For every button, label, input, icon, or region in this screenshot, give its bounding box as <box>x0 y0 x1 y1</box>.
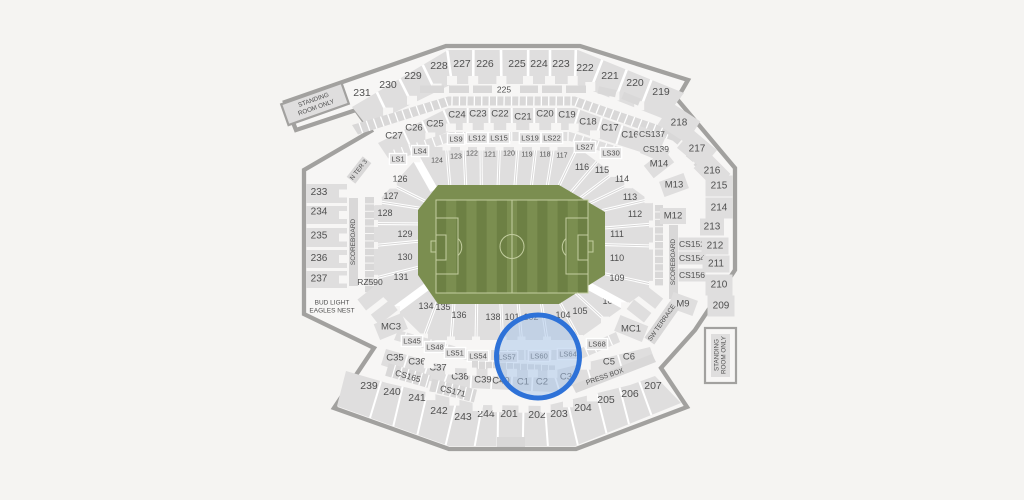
svg-text:123: 123 <box>450 154 462 161</box>
svg-text:C19: C19 <box>558 110 575 121</box>
svg-text:229: 229 <box>404 70 422 82</box>
svg-text:220: 220 <box>626 77 644 89</box>
svg-text:C26: C26 <box>405 123 422 134</box>
svg-text:LS1: LS1 <box>391 155 404 164</box>
svg-text:LS30: LS30 <box>602 149 620 158</box>
svg-text:217: 217 <box>689 144 706 155</box>
svg-text:223: 223 <box>552 58 570 70</box>
svg-text:C35: C35 <box>386 353 403 364</box>
svg-text:SCOREBOARD: SCOREBOARD <box>670 239 677 286</box>
svg-text:124: 124 <box>431 158 443 165</box>
svg-text:LS51: LS51 <box>446 349 464 358</box>
svg-text:CS156: CS156 <box>679 270 705 280</box>
svg-text:C18: C18 <box>579 117 596 128</box>
svg-text:C21: C21 <box>514 112 531 123</box>
svg-text:213: 213 <box>704 222 721 233</box>
svg-text:201: 201 <box>500 408 518 420</box>
svg-text:LS45: LS45 <box>403 337 421 346</box>
svg-text:231: 231 <box>353 87 371 99</box>
svg-text:C23: C23 <box>469 109 486 120</box>
svg-text:C22: C22 <box>491 109 508 120</box>
svg-text:122: 122 <box>466 151 478 158</box>
svg-text:234: 234 <box>311 207 328 218</box>
svg-text:C20: C20 <box>536 109 553 120</box>
svg-text:241: 241 <box>408 392 426 404</box>
svg-text:111: 111 <box>610 229 624 239</box>
svg-text:228: 228 <box>430 60 448 72</box>
svg-text:136: 136 <box>451 310 466 320</box>
svg-text:LS27: LS27 <box>576 143 594 152</box>
svg-text:242: 242 <box>430 405 448 417</box>
svg-text:CS154: CS154 <box>679 253 705 263</box>
svg-text:230: 230 <box>379 79 397 91</box>
svg-text:131: 131 <box>393 272 408 282</box>
svg-text:225: 225 <box>497 85 511 95</box>
svg-text:C16: C16 <box>621 130 638 141</box>
svg-text:MC1: MC1 <box>621 324 641 335</box>
svg-text:120: 120 <box>503 151 515 158</box>
svg-text:210: 210 <box>711 280 728 291</box>
svg-text:130: 130 <box>397 252 412 262</box>
svg-text:LS9: LS9 <box>449 135 462 144</box>
svg-text:110: 110 <box>610 253 624 263</box>
svg-text:BUD LIGHT: BUD LIGHT <box>315 300 350 307</box>
svg-text:219: 219 <box>652 86 670 98</box>
svg-text:225: 225 <box>508 58 526 70</box>
svg-text:M14: M14 <box>650 159 668 170</box>
svg-text:134: 134 <box>418 301 433 311</box>
svg-text:LS19: LS19 <box>521 134 539 143</box>
svg-text:113: 113 <box>623 192 637 202</box>
svg-text:LS4: LS4 <box>413 147 426 156</box>
svg-text:LS15: LS15 <box>490 134 508 143</box>
svg-text:224: 224 <box>530 58 548 70</box>
svg-text:221: 221 <box>601 70 619 82</box>
svg-text:214: 214 <box>711 203 728 214</box>
svg-text:EAGLES NEST: EAGLES NEST <box>309 308 354 315</box>
svg-text:117: 117 <box>556 153 567 160</box>
svg-text:127: 127 <box>383 191 398 201</box>
svg-text:211: 211 <box>708 259 724 270</box>
svg-text:LS22: LS22 <box>543 134 561 143</box>
svg-text:222: 222 <box>576 62 594 74</box>
svg-text:115: 115 <box>595 165 609 175</box>
svg-text:C25: C25 <box>426 119 443 130</box>
svg-text:215: 215 <box>711 181 728 192</box>
svg-text:129: 129 <box>397 229 412 239</box>
svg-text:226: 226 <box>476 58 494 70</box>
svg-text:M12: M12 <box>664 211 682 222</box>
svg-text:C36: C36 <box>408 357 425 368</box>
svg-text:240: 240 <box>383 386 401 398</box>
svg-text:233: 233 <box>311 187 328 198</box>
svg-text:C24: C24 <box>448 110 465 121</box>
svg-text:CS152: CS152 <box>679 239 705 249</box>
svg-text:119: 119 <box>521 152 532 159</box>
svg-text:112: 112 <box>628 209 642 219</box>
svg-text:LS12: LS12 <box>468 134 486 143</box>
svg-text:216: 216 <box>704 166 721 177</box>
svg-text:138: 138 <box>485 312 500 322</box>
svg-text:C17: C17 <box>601 123 618 134</box>
svg-text:206: 206 <box>621 388 639 400</box>
svg-text:203: 203 <box>550 408 568 420</box>
svg-text:218: 218 <box>671 118 688 129</box>
svg-text:121: 121 <box>484 152 496 159</box>
svg-text:ROOM ONLY: ROOM ONLY <box>721 335 728 374</box>
svg-text:LS48: LS48 <box>426 343 444 352</box>
svg-text:C27: C27 <box>385 131 402 142</box>
svg-text:128: 128 <box>377 208 392 218</box>
svg-text:M13: M13 <box>665 180 683 191</box>
svg-text:236: 236 <box>311 253 328 264</box>
svg-text:237: 237 <box>311 274 328 285</box>
svg-text:STANDING: STANDING <box>714 339 721 371</box>
svg-text:116: 116 <box>575 162 589 172</box>
svg-text:212: 212 <box>707 241 724 252</box>
svg-text:227: 227 <box>453 58 471 70</box>
svg-text:SCOREBOARD: SCOREBOARD <box>350 219 357 266</box>
svg-text:209: 209 <box>713 301 730 312</box>
svg-text:207: 207 <box>644 380 662 392</box>
svg-text:LS54: LS54 <box>469 352 487 361</box>
svg-text:C5: C5 <box>603 357 615 368</box>
svg-text:205: 205 <box>597 394 615 406</box>
svg-text:204: 204 <box>574 402 592 414</box>
svg-text:239: 239 <box>360 380 378 392</box>
svg-text:CS137: CS137 <box>639 129 665 139</box>
svg-text:105: 105 <box>572 306 587 316</box>
svg-text:235: 235 <box>311 231 328 242</box>
svg-text:C6: C6 <box>623 352 635 363</box>
svg-text:LS68: LS68 <box>588 340 606 349</box>
svg-text:118: 118 <box>539 152 550 159</box>
svg-text:243: 243 <box>454 411 472 423</box>
svg-text:109: 109 <box>609 273 624 283</box>
